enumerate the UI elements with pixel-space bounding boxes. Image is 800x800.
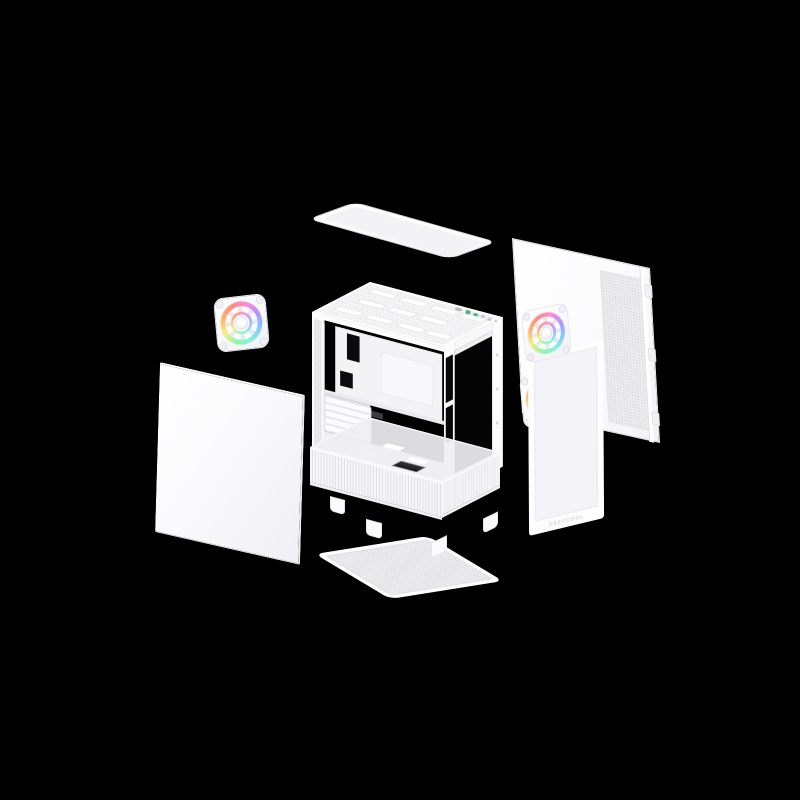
io-power-led	[465, 310, 471, 315]
fan-mount-slot	[333, 306, 365, 316]
cable-gap	[340, 370, 353, 388]
fan-mount-slot	[386, 307, 418, 317]
fan-screw-hole	[255, 295, 264, 304]
fan-mount-slot	[355, 299, 387, 309]
fan-screw-hole	[215, 300, 224, 309]
fan-mount-slot	[417, 315, 449, 325]
side-panel-mount-tab	[651, 412, 660, 427]
front-glass-panel: DEEPCOOL	[528, 339, 604, 536]
side-panel-mount-tab	[648, 348, 657, 363]
fan-screw-hole	[562, 344, 570, 354]
case-foot	[366, 519, 382, 539]
rear-exhaust-rgb-fan	[213, 293, 270, 353]
fan-mount-slot	[397, 297, 429, 307]
fan-screw-hole	[259, 337, 268, 346]
io-power-button	[494, 319, 498, 323]
io-usb-port	[455, 307, 463, 312]
tray-cutout	[381, 351, 433, 407]
fan-screw-hole	[527, 352, 535, 362]
case-foot	[483, 511, 498, 533]
top-dust-filter	[308, 202, 497, 259]
cable-gap	[347, 333, 360, 362]
io-reset-button	[487, 317, 492, 321]
io-usb-port	[473, 313, 479, 317]
io-audio-jack	[481, 315, 486, 319]
fan-mount-slot	[366, 289, 398, 299]
exploded-pc-case-render: DEEPCOOL	[0, 0, 800, 800]
fan-mount-slot	[424, 330, 454, 340]
fan-screw-hole	[219, 342, 228, 351]
side-panel-mount-tab	[644, 284, 653, 299]
front-frame-column	[492, 317, 503, 473]
fan-screw-hole	[523, 312, 531, 322]
bottom-dust-filter	[315, 536, 503, 599]
bottom-dust-filter-mesh	[326, 540, 492, 595]
fan-screw-hole	[558, 304, 566, 314]
case-foot	[330, 496, 345, 515]
fan-pad	[382, 443, 406, 451]
fan-mount-slot	[364, 314, 396, 324]
fan-mount-slot	[395, 323, 427, 333]
left-side-panel	[155, 362, 305, 565]
brand-logo: DEEPCOOL	[535, 509, 598, 532]
top-dust-filter-mesh	[321, 206, 483, 254]
front-rgb-fan-upper	[521, 302, 572, 364]
front-frame-gap	[446, 354, 453, 403]
